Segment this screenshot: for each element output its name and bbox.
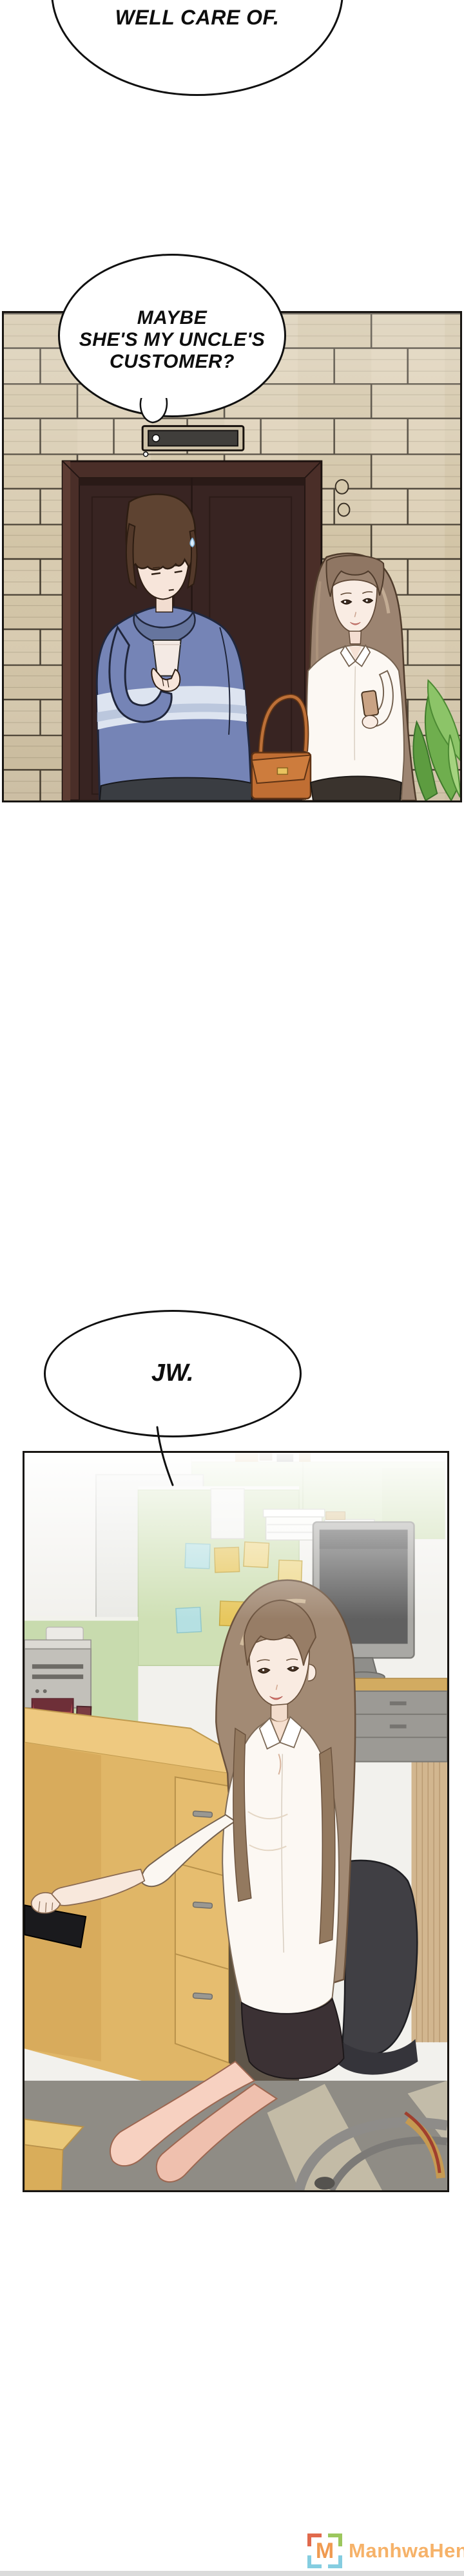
- watermark-logo: M: [307, 2533, 343, 2569]
- speech-bubble-jw-tail: [148, 1418, 187, 1492]
- speech-bubble-jw-text: JW.: [151, 1359, 194, 1387]
- speech-bubble-uncle-tail: [132, 394, 177, 429]
- door-sign: [142, 426, 244, 451]
- watermark-logo-letter: M: [307, 2533, 343, 2569]
- panel-office: [23, 1451, 449, 2192]
- thought-trail-dot: [144, 452, 148, 457]
- speech-bubble-top-text: WELL CARE OF.: [115, 6, 280, 29]
- woman-skirt: [311, 777, 401, 800]
- gray-cabinet: [349, 1691, 447, 1761]
- page-bottom-border: [0, 2571, 464, 2576]
- speech-bubble-uncle-line1: MAYBE: [79, 307, 265, 329]
- speech-bubble-top: WELL CARE OF.: [51, 0, 343, 96]
- comic-page: WELL CARE OF. MAYBE SHE'S MY UNCLE'S CUS…: [0, 0, 464, 2576]
- watermark-site-name: ManhwaHentai: [349, 2539, 464, 2562]
- speech-bubble-uncle-line3: CUSTOMER?: [79, 351, 265, 373]
- speech-bubble-uncle: MAYBE SHE'S MY UNCLE'S CUSTOMER?: [58, 254, 286, 417]
- window-blinds: [412, 1722, 447, 2042]
- speech-bubble-uncle-line2: SHE'S MY UNCLE'S: [79, 329, 265, 351]
- watermark-link[interactable]: M ManhwaHentai: [307, 2533, 464, 2569]
- man-hair: [126, 494, 195, 569]
- phone: [362, 690, 379, 716]
- woman-hand: [362, 715, 378, 728]
- panel-office-art: [24, 1453, 447, 2190]
